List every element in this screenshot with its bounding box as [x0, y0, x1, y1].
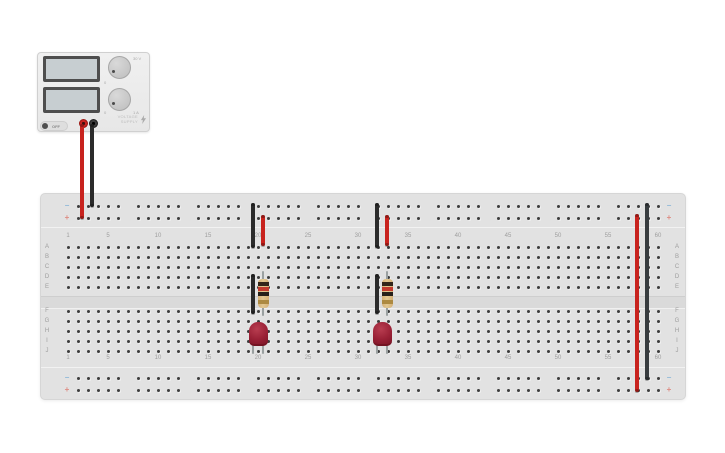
breadboard-hole[interactable] — [587, 276, 590, 279]
rail-to-row-black-wire-2[interactable] — [375, 203, 379, 248]
breadboard-hole[interactable] — [77, 330, 80, 333]
breadboard-hole[interactable] — [657, 340, 660, 343]
supply-positive-lead-wire[interactable] — [80, 124, 84, 219]
breadboard-hole[interactable] — [417, 217, 420, 220]
breadboard-hole[interactable] — [397, 266, 400, 269]
breadboard-hole[interactable] — [257, 217, 260, 220]
breadboard-hole[interactable] — [117, 246, 120, 249]
breadboard-hole[interactable] — [417, 377, 420, 380]
breadboard-hole[interactable] — [187, 286, 190, 289]
breadboard-hole[interactable] — [187, 256, 190, 259]
breadboard-hole[interactable] — [417, 350, 420, 353]
breadboard-hole[interactable] — [297, 350, 300, 353]
rail-to-rail-black-wire[interactable] — [645, 203, 649, 380]
breadboard-hole[interactable] — [237, 246, 240, 249]
breadboard-hole[interactable] — [267, 350, 270, 353]
breadboard-hole[interactable] — [347, 310, 350, 313]
breadboard-hole[interactable] — [347, 246, 350, 249]
breadboard-hole[interactable] — [297, 320, 300, 323]
breadboard-hole[interactable] — [137, 320, 140, 323]
breadboard-hole[interactable] — [137, 330, 140, 333]
breadboard-hole[interactable] — [447, 246, 450, 249]
breadboard-hole[interactable] — [107, 377, 110, 380]
breadboard-hole[interactable] — [327, 286, 330, 289]
breadboard-hole[interactable] — [447, 340, 450, 343]
breadboard-hole[interactable] — [547, 310, 550, 313]
breadboard-hole[interactable] — [227, 266, 230, 269]
breadboard-hole[interactable] — [117, 205, 120, 208]
breadboard-hole[interactable] — [517, 350, 520, 353]
breadboard-hole[interactable] — [587, 286, 590, 289]
power-supply[interactable]: 30 V 0 1 A 0 OFF VOLTAGE SUPPLY — [37, 52, 150, 132]
breadboard-hole[interactable] — [477, 340, 480, 343]
breadboard-hole[interactable] — [327, 377, 330, 380]
breadboard-hole[interactable] — [577, 310, 580, 313]
breadboard-hole[interactable] — [557, 377, 560, 380]
breadboard-hole[interactable] — [497, 389, 500, 392]
breadboard-hole[interactable] — [527, 276, 530, 279]
breadboard-hole[interactable] — [477, 330, 480, 333]
breadboard-hole[interactable] — [537, 350, 540, 353]
breadboard-hole[interactable] — [577, 320, 580, 323]
breadboard-hole[interactable] — [617, 330, 620, 333]
breadboard-hole[interactable] — [597, 310, 600, 313]
breadboard-hole[interactable] — [257, 205, 260, 208]
breadboard-hole[interactable] — [567, 377, 570, 380]
breadboard-hole[interactable] — [567, 350, 570, 353]
breadboard-hole[interactable] — [557, 217, 560, 220]
breadboard-hole[interactable] — [497, 377, 500, 380]
breadboard-hole[interactable] — [137, 205, 140, 208]
breadboard-hole[interactable] — [467, 389, 470, 392]
breadboard-hole[interactable] — [297, 217, 300, 220]
breadboard-hole[interactable] — [587, 340, 590, 343]
breadboard-hole[interactable] — [567, 286, 570, 289]
breadboard-hole[interactable] — [447, 310, 450, 313]
breadboard-hole[interactable] — [537, 310, 540, 313]
breadboard-hole[interactable] — [557, 340, 560, 343]
breadboard-hole[interactable] — [557, 266, 560, 269]
breadboard-hole[interactable] — [287, 266, 290, 269]
breadboard-hole[interactable] — [117, 389, 120, 392]
breadboard-hole[interactable] — [227, 350, 230, 353]
breadboard-hole[interactable] — [627, 205, 630, 208]
rail-to-row-black-wire-1[interactable] — [251, 203, 255, 248]
breadboard-hole[interactable] — [87, 256, 90, 259]
breadboard-hole[interactable] — [497, 330, 500, 333]
breadboard-hole[interactable] — [87, 246, 90, 249]
breadboard-hole[interactable] — [347, 205, 350, 208]
breadboard-hole[interactable] — [427, 266, 430, 269]
breadboard-hole[interactable] — [297, 330, 300, 333]
breadboard-hole[interactable] — [77, 266, 80, 269]
breadboard-hole[interactable] — [67, 256, 70, 259]
breadboard-hole[interactable] — [127, 276, 130, 279]
breadboard-hole[interactable] — [157, 217, 160, 220]
breadboard-hole[interactable] — [547, 266, 550, 269]
breadboard-hole[interactable] — [437, 276, 440, 279]
breadboard-hole[interactable] — [147, 340, 150, 343]
breadboard-hole[interactable] — [377, 377, 380, 380]
breadboard-hole[interactable] — [457, 276, 460, 279]
breadboard-hole[interactable] — [487, 266, 490, 269]
breadboard-hole[interactable] — [387, 256, 390, 259]
breadboard-hole[interactable] — [77, 276, 80, 279]
breadboard-hole[interactable] — [377, 256, 380, 259]
breadboard-hole[interactable] — [617, 217, 620, 220]
breadboard-hole[interactable] — [427, 310, 430, 313]
breadboard-hole[interactable] — [177, 377, 180, 380]
breadboard-hole[interactable] — [597, 320, 600, 323]
breadboard-hole[interactable] — [507, 377, 510, 380]
breadboard-hole[interactable] — [537, 266, 540, 269]
breadboard-hole[interactable] — [557, 330, 560, 333]
breadboard-hole[interactable] — [337, 377, 340, 380]
breadboard-hole[interactable] — [347, 266, 350, 269]
breadboard-hole[interactable] — [167, 377, 170, 380]
breadboard-hole[interactable] — [97, 350, 100, 353]
breadboard-hole[interactable] — [607, 246, 610, 249]
breadboard-hole[interactable] — [547, 330, 550, 333]
breadboard-hole[interactable] — [397, 350, 400, 353]
breadboard-hole[interactable] — [67, 266, 70, 269]
breadboard-hole[interactable] — [107, 310, 110, 313]
breadboard-hole[interactable] — [247, 266, 250, 269]
breadboard-hole[interactable] — [117, 377, 120, 380]
breadboard-hole[interactable] — [477, 310, 480, 313]
breadboard-hole[interactable] — [477, 286, 480, 289]
breadboard-hole[interactable] — [107, 340, 110, 343]
breadboard-hole[interactable] — [407, 205, 410, 208]
rail-to-row-red-wire-2[interactable] — [385, 215, 389, 246]
breadboard-hole[interactable] — [237, 205, 240, 208]
breadboard-hole[interactable] — [167, 389, 170, 392]
breadboard-hole[interactable] — [137, 286, 140, 289]
breadboard-hole[interactable] — [467, 217, 470, 220]
breadboard-hole[interactable] — [177, 205, 180, 208]
breadboard-hole[interactable] — [227, 276, 230, 279]
breadboard-hole[interactable] — [527, 310, 530, 313]
breadboard-hole[interactable] — [437, 217, 440, 220]
breadboard-hole[interactable] — [387, 266, 390, 269]
breadboard-hole[interactable] — [247, 320, 250, 323]
breadboard-hole[interactable] — [307, 320, 310, 323]
breadboard-hole[interactable] — [127, 286, 130, 289]
breadboard-hole[interactable] — [87, 340, 90, 343]
breadboard-hole[interactable] — [107, 389, 110, 392]
breadboard-hole[interactable] — [237, 310, 240, 313]
breadboard-hole[interactable] — [377, 389, 380, 392]
breadboard-hole[interactable] — [607, 256, 610, 259]
breadboard-hole[interactable] — [147, 286, 150, 289]
power-off-button[interactable]: OFF — [40, 121, 68, 131]
breadboard-hole[interactable] — [547, 340, 550, 343]
breadboard-hole[interactable] — [437, 377, 440, 380]
breadboard-hole[interactable] — [117, 276, 120, 279]
breadboard-hole[interactable] — [277, 389, 280, 392]
breadboard-hole[interactable] — [587, 246, 590, 249]
breadboard-hole[interactable] — [297, 340, 300, 343]
breadboard-hole[interactable] — [657, 320, 660, 323]
breadboard-hole[interactable] — [477, 205, 480, 208]
breadboard-hole[interactable] — [127, 330, 130, 333]
breadboard-hole[interactable] — [357, 340, 360, 343]
breadboard-hole[interactable] — [497, 350, 500, 353]
breadboard-hole[interactable] — [87, 320, 90, 323]
breadboard-hole[interactable] — [487, 320, 490, 323]
breadboard-hole[interactable] — [577, 350, 580, 353]
breadboard-hole[interactable] — [627, 340, 630, 343]
breadboard-hole[interactable] — [577, 246, 580, 249]
breadboard-hole[interactable] — [527, 389, 530, 392]
breadboard-hole[interactable] — [657, 377, 660, 380]
breadboard-hole[interactable] — [407, 246, 410, 249]
breadboard-hole[interactable] — [347, 377, 350, 380]
breadboard-hole[interactable] — [557, 350, 560, 353]
breadboard-hole[interactable] — [507, 286, 510, 289]
breadboard-hole[interactable] — [567, 389, 570, 392]
breadboard-hole[interactable] — [187, 276, 190, 279]
breadboard-hole[interactable] — [457, 246, 460, 249]
breadboard-hole[interactable] — [317, 389, 320, 392]
breadboard-hole[interactable] — [587, 217, 590, 220]
breadboard-hole[interactable] — [567, 320, 570, 323]
breadboard-hole[interactable] — [257, 266, 260, 269]
breadboard-hole[interactable] — [127, 320, 130, 323]
breadboard-hole[interactable] — [267, 205, 270, 208]
breadboard-hole[interactable] — [577, 276, 580, 279]
breadboard-hole[interactable] — [597, 340, 600, 343]
breadboard-hole[interactable] — [367, 256, 370, 259]
breadboard-hole[interactable] — [357, 266, 360, 269]
breadboard-hole[interactable] — [177, 330, 180, 333]
breadboard-hole[interactable] — [247, 310, 250, 313]
supply-negative-lead-wire[interactable] — [90, 124, 94, 207]
breadboard-hole[interactable] — [407, 266, 410, 269]
breadboard-hole[interactable] — [357, 217, 360, 220]
breadboard-hole[interactable] — [397, 246, 400, 249]
breadboard-hole[interactable] — [537, 340, 540, 343]
breadboard-hole[interactable] — [597, 286, 600, 289]
breadboard-hole[interactable] — [347, 256, 350, 259]
breadboard-hole[interactable] — [367, 286, 370, 289]
breadboard-hole[interactable] — [417, 256, 420, 259]
breadboard-hole[interactable] — [197, 377, 200, 380]
breadboard-hole[interactable] — [97, 286, 100, 289]
breadboard-hole[interactable] — [417, 330, 420, 333]
breadboard-hole[interactable] — [627, 320, 630, 323]
breadboard-hole[interactable] — [117, 310, 120, 313]
breadboard-hole[interactable] — [597, 256, 600, 259]
breadboard-hole[interactable] — [267, 377, 270, 380]
breadboard-hole[interactable] — [537, 330, 540, 333]
breadboard-hole[interactable] — [567, 217, 570, 220]
breadboard-hole[interactable] — [67, 320, 70, 323]
breadboard-hole[interactable] — [437, 286, 440, 289]
breadboard-hole[interactable] — [427, 330, 430, 333]
breadboard-hole[interactable] — [647, 389, 650, 392]
breadboard-hole[interactable] — [297, 256, 300, 259]
breadboard-hole[interactable] — [547, 256, 550, 259]
breadboard-hole[interactable] — [317, 276, 320, 279]
breadboard-hole[interactable] — [137, 246, 140, 249]
breadboard-hole[interactable] — [477, 350, 480, 353]
breadboard-hole[interactable] — [527, 217, 530, 220]
breadboard-hole[interactable] — [137, 310, 140, 313]
breadboard-hole[interactable] — [447, 286, 450, 289]
breadboard-hole[interactable] — [107, 217, 110, 220]
breadboard-hole[interactable] — [467, 340, 470, 343]
breadboard-hole[interactable] — [397, 389, 400, 392]
breadboard-hole[interactable] — [187, 350, 190, 353]
breadboard-hole[interactable] — [117, 286, 120, 289]
gap-jumper-black-wire-2[interactable] — [375, 274, 379, 314]
breadboard-hole[interactable] — [77, 377, 80, 380]
breadboard-hole[interactable] — [327, 389, 330, 392]
breadboard-hole[interactable] — [527, 266, 530, 269]
breadboard-hole[interactable] — [287, 389, 290, 392]
breadboard-hole[interactable] — [157, 246, 160, 249]
breadboard-hole[interactable] — [207, 330, 210, 333]
breadboard-hole[interactable] — [617, 310, 620, 313]
breadboard-hole[interactable] — [67, 246, 70, 249]
breadboard-hole[interactable] — [117, 330, 120, 333]
breadboard-hole[interactable] — [587, 205, 590, 208]
breadboard-hole[interactable] — [557, 256, 560, 259]
breadboard-hole[interactable] — [437, 330, 440, 333]
breadboard-hole[interactable] — [537, 286, 540, 289]
breadboard-hole[interactable] — [307, 246, 310, 249]
breadboard-hole[interactable] — [67, 310, 70, 313]
breadboard-hole[interactable] — [197, 217, 200, 220]
breadboard-hole[interactable] — [657, 256, 660, 259]
breadboard-hole[interactable] — [337, 256, 340, 259]
breadboard-hole[interactable] — [567, 246, 570, 249]
breadboard-hole[interactable] — [357, 246, 360, 249]
breadboard-hole[interactable] — [517, 340, 520, 343]
breadboard-hole[interactable] — [67, 340, 70, 343]
breadboard-hole[interactable] — [537, 377, 540, 380]
breadboard-hole[interactable] — [457, 266, 460, 269]
breadboard-hole[interactable] — [517, 205, 520, 208]
breadboard-hole[interactable] — [137, 276, 140, 279]
breadboard-hole[interactable] — [547, 286, 550, 289]
breadboard-hole[interactable] — [347, 320, 350, 323]
breadboard-hole[interactable] — [577, 377, 580, 380]
breadboard-hole[interactable] — [157, 266, 160, 269]
breadboard-hole[interactable] — [297, 246, 300, 249]
breadboard-hole[interactable] — [537, 276, 540, 279]
breadboard-hole[interactable] — [287, 246, 290, 249]
breadboard-hole[interactable] — [277, 205, 280, 208]
breadboard-hole[interactable] — [577, 256, 580, 259]
breadboard-hole[interactable] — [197, 246, 200, 249]
breadboard-hole[interactable] — [357, 276, 360, 279]
breadboard-hole[interactable] — [197, 256, 200, 259]
breadboard-hole[interactable] — [657, 310, 660, 313]
breadboard-hole[interactable] — [287, 340, 290, 343]
breadboard-hole[interactable] — [487, 276, 490, 279]
breadboard-hole[interactable] — [167, 256, 170, 259]
breadboard-hole[interactable] — [107, 266, 110, 269]
breadboard-hole[interactable] — [227, 217, 230, 220]
breadboard-hole[interactable] — [617, 320, 620, 323]
breadboard-hole[interactable] — [607, 276, 610, 279]
breadboard-hole[interactable] — [567, 276, 570, 279]
breadboard-hole[interactable] — [277, 310, 280, 313]
breadboard-hole[interactable] — [317, 330, 320, 333]
breadboard-hole[interactable] — [227, 286, 230, 289]
breadboard-hole[interactable] — [577, 217, 580, 220]
breadboard-hole[interactable] — [237, 320, 240, 323]
breadboard-hole[interactable] — [307, 256, 310, 259]
breadboard-hole[interactable] — [607, 330, 610, 333]
breadboard-hole[interactable] — [77, 389, 80, 392]
breadboard-hole[interactable] — [227, 340, 230, 343]
breadboard-hole[interactable] — [657, 389, 660, 392]
resistor-1[interactable] — [258, 271, 269, 316]
breadboard-hole[interactable] — [217, 340, 220, 343]
breadboard-hole[interactable] — [157, 377, 160, 380]
breadboard-hole[interactable] — [467, 377, 470, 380]
breadboard-hole[interactable] — [177, 256, 180, 259]
breadboard-hole[interactable] — [167, 330, 170, 333]
breadboard-hole[interactable] — [577, 286, 580, 289]
breadboard-hole[interactable] — [267, 320, 270, 323]
breadboard-hole[interactable] — [327, 266, 330, 269]
breadboard-hole[interactable] — [217, 377, 220, 380]
breadboard-hole[interactable] — [427, 340, 430, 343]
breadboard-hole[interactable] — [87, 377, 90, 380]
breadboard-hole[interactable] — [347, 350, 350, 353]
breadboard-hole[interactable] — [417, 389, 420, 392]
breadboard-hole[interactable] — [287, 330, 290, 333]
breadboard-hole[interactable] — [187, 320, 190, 323]
breadboard-hole[interactable] — [357, 286, 360, 289]
breadboard-hole[interactable] — [227, 389, 230, 392]
breadboard-hole[interactable] — [397, 310, 400, 313]
breadboard-hole[interactable] — [437, 310, 440, 313]
breadboard-hole[interactable] — [287, 276, 290, 279]
breadboard-hole[interactable] — [487, 310, 490, 313]
breadboard-hole[interactable] — [177, 389, 180, 392]
breadboard-hole[interactable] — [457, 217, 460, 220]
breadboard-hole[interactable] — [97, 276, 100, 279]
breadboard-hole[interactable] — [177, 286, 180, 289]
breadboard-hole[interactable] — [397, 340, 400, 343]
breadboard-hole[interactable] — [517, 246, 520, 249]
breadboard-hole[interactable] — [417, 266, 420, 269]
breadboard-hole[interactable] — [367, 246, 370, 249]
breadboard-hole[interactable] — [67, 330, 70, 333]
breadboard-hole[interactable] — [337, 340, 340, 343]
breadboard-hole[interactable] — [517, 389, 520, 392]
breadboard-hole[interactable] — [267, 246, 270, 249]
breadboard-hole[interactable] — [137, 350, 140, 353]
breadboard-hole[interactable] — [217, 256, 220, 259]
breadboard-hole[interactable] — [327, 310, 330, 313]
breadboard-hole[interactable] — [467, 350, 470, 353]
breadboard-hole[interactable] — [237, 286, 240, 289]
breadboard-hole[interactable] — [327, 330, 330, 333]
breadboard-hole[interactable] — [177, 217, 180, 220]
breadboard-hole[interactable] — [617, 256, 620, 259]
breadboard-hole[interactable] — [487, 340, 490, 343]
breadboard-hole[interactable] — [147, 205, 150, 208]
breadboard-hole[interactable] — [87, 310, 90, 313]
breadboard-hole[interactable] — [507, 310, 510, 313]
breadboard-hole[interactable] — [207, 310, 210, 313]
